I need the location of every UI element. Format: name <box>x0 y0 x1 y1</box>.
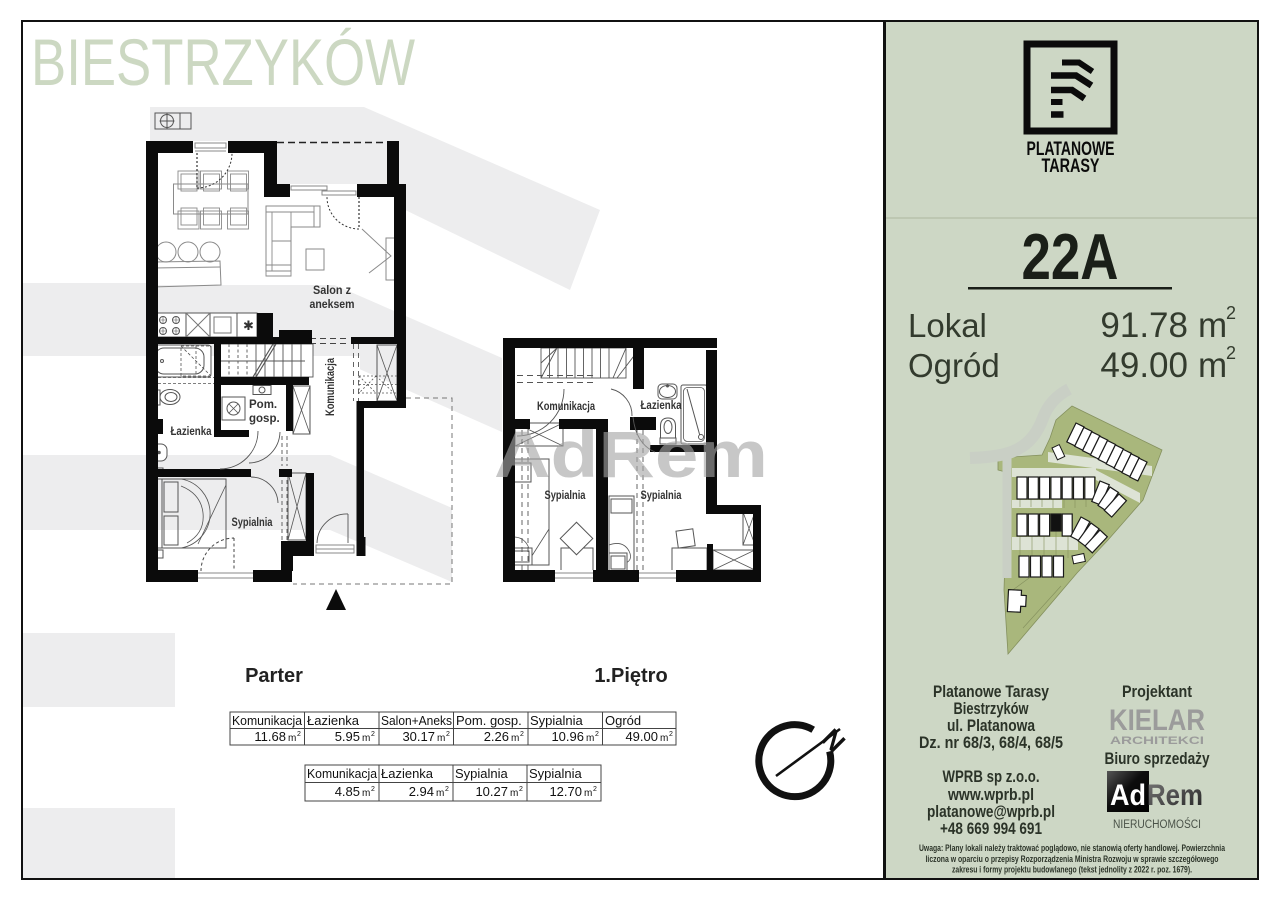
svg-text:49.00: 49.00 <box>625 729 658 744</box>
svg-text:Komunikacja: Komunikacja <box>307 766 378 781</box>
svg-text:Ogród: Ogród <box>605 713 641 728</box>
svg-text:Biuro sprzedaży: Biuro sprzedaży <box>1105 749 1210 768</box>
svg-text:2.26: 2.26 <box>484 729 509 744</box>
svg-text:Sypialnia: Sypialnia <box>455 766 509 781</box>
svg-text:aneksem: aneksem <box>310 299 355 311</box>
svg-text:30.17: 30.17 <box>402 729 435 744</box>
svg-text:AdRem: AdRem <box>494 417 768 491</box>
svg-text:Pom.: Pom. <box>249 399 277 411</box>
svg-text:2: 2 <box>371 786 375 793</box>
svg-text:Łazienka: Łazienka <box>641 400 683 412</box>
svg-text:TARASY: TARASY <box>1042 155 1100 177</box>
svg-text:11.68: 11.68 <box>254 729 286 744</box>
svg-text:10.27: 10.27 <box>475 784 508 799</box>
svg-text:Sypialnia: Sypialnia <box>641 490 682 502</box>
svg-text:Lokal: Lokal <box>908 307 987 344</box>
svg-text:Sypialnia: Sypialnia <box>529 766 583 781</box>
svg-text:Salon z: Salon z <box>313 285 351 297</box>
svg-text:Sypialnia: Sypialnia <box>530 713 584 728</box>
svg-text:Rem: Rem <box>1147 779 1203 812</box>
svg-text:m: m <box>1198 346 1227 385</box>
svg-text:m: m <box>1198 306 1227 345</box>
svg-text:2.94: 2.94 <box>409 784 434 799</box>
svg-text:49.00: 49.00 <box>1100 346 1188 385</box>
svg-text:2: 2 <box>595 731 599 738</box>
svg-text:2: 2 <box>445 786 449 793</box>
svg-text:m: m <box>362 733 370 744</box>
svg-text:Parter: Parter <box>245 665 303 687</box>
svg-text:91.78: 91.78 <box>1100 306 1188 345</box>
svg-text:Komunikacja: Komunikacja <box>325 358 337 416</box>
svg-text:m: m <box>436 788 444 799</box>
svg-text:gosp.: gosp. <box>249 413 280 425</box>
svg-text:m: m <box>586 733 594 744</box>
svg-text:2: 2 <box>297 731 301 738</box>
svg-text:WPRB sp z.o.o.: WPRB sp z.o.o. <box>943 767 1040 786</box>
svg-text:zakresu i formy projektu budow: zakresu i formy projektu budowlanego (te… <box>952 865 1192 876</box>
svg-text:NIERUCHOMOŚCI: NIERUCHOMOŚCI <box>1113 818 1201 831</box>
svg-text:10.96: 10.96 <box>551 729 584 744</box>
svg-text:Ad: Ad <box>1110 779 1146 812</box>
svg-text:m: m <box>362 788 370 799</box>
svg-text:4.85: 4.85 <box>335 784 360 799</box>
svg-text:2: 2 <box>669 731 673 738</box>
svg-text:2: 2 <box>1226 303 1236 323</box>
svg-text:KIELAR: KIELAR <box>1109 704 1205 737</box>
svg-text:Salon+Aneks: Salon+Aneks <box>381 713 452 728</box>
svg-text:22A: 22A <box>1022 220 1119 293</box>
svg-text:Pom. gosp.: Pom. gosp. <box>456 713 522 728</box>
svg-text:Komunikacja: Komunikacja <box>537 401 595 413</box>
svg-text:Sypialnia: Sypialnia <box>545 490 586 502</box>
svg-text:Uwaga: Plany lokali należy tra: Uwaga: Plany lokali należy traktować pog… <box>919 843 1226 854</box>
svg-text:Ogród: Ogród <box>908 347 1000 384</box>
svg-text:m: m <box>511 733 519 744</box>
svg-text:m: m <box>584 788 592 799</box>
svg-text:BIESTRZYKÓW: BIESTRZYKÓW <box>31 25 416 99</box>
svg-text:m: m <box>288 733 296 744</box>
svg-text:Projektant: Projektant <box>1122 682 1192 701</box>
svg-text:2: 2 <box>1226 343 1236 363</box>
svg-text:2: 2 <box>520 731 524 738</box>
svg-text:ARCHITEKCI: ARCHITEKCI <box>1110 735 1204 747</box>
svg-text:Sypialnia: Sypialnia <box>232 517 273 529</box>
svg-text:m: m <box>437 733 445 744</box>
svg-text:Łazienka: Łazienka <box>381 766 434 781</box>
svg-text:Dz. nr 68/3, 68/4, 68/5: Dz. nr 68/3, 68/4, 68/5 <box>919 733 1063 752</box>
svg-text:Łazienka: Łazienka <box>171 426 213 438</box>
svg-text:Komunikacja: Komunikacja <box>232 713 303 728</box>
svg-text:2: 2 <box>371 731 375 738</box>
svg-text:2: 2 <box>446 731 450 738</box>
svg-text:1.Piętro: 1.Piętro <box>594 665 667 687</box>
svg-text:5.95: 5.95 <box>335 729 360 744</box>
svg-text:+48 669 994 691: +48 669 994 691 <box>940 819 1042 838</box>
svg-text:✱: ✱ <box>243 318 254 333</box>
svg-text:2: 2 <box>593 786 597 793</box>
svg-text:12.70: 12.70 <box>549 784 582 799</box>
svg-text:Łazienka: Łazienka <box>307 713 360 728</box>
svg-text:m: m <box>510 788 518 799</box>
svg-text:liczona w oparciu o przepisy R: liczona w oparciu o przepisy Rozporządze… <box>926 854 1219 865</box>
svg-text:m: m <box>660 733 668 744</box>
svg-text:2: 2 <box>519 786 523 793</box>
